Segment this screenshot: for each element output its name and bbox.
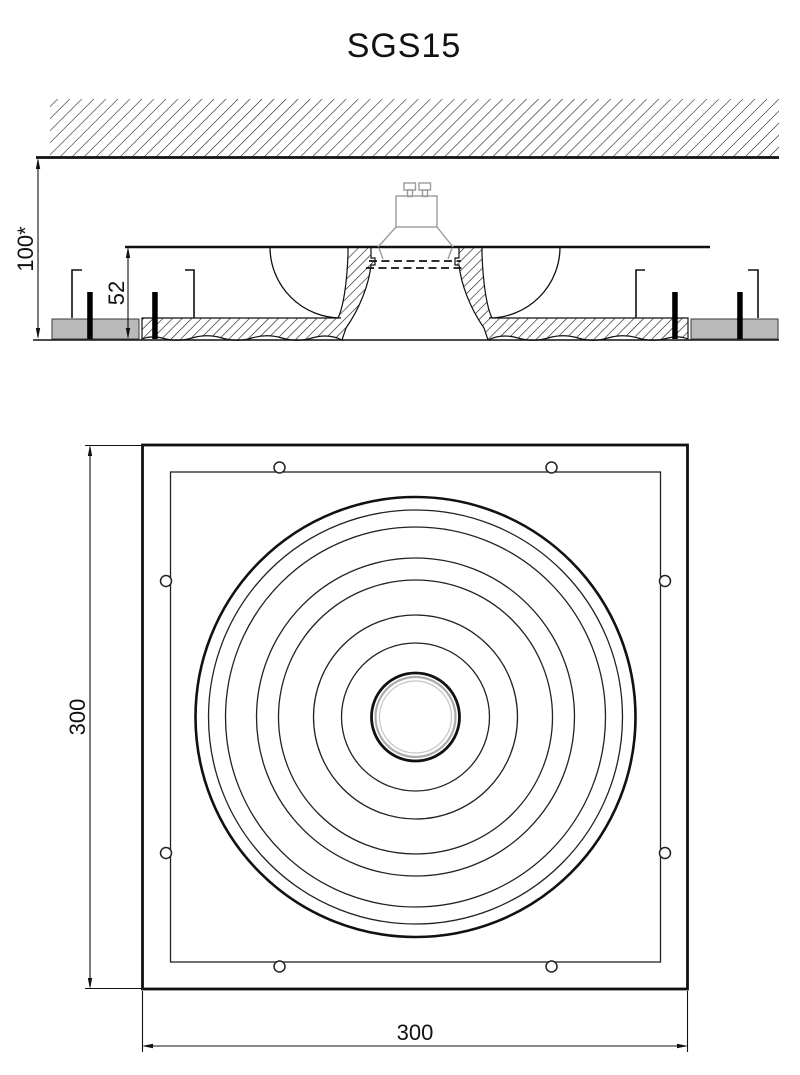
cove-curve-left [270,247,341,318]
ripple-circle [279,580,553,854]
plan-width-dimension: 300 [142,991,688,1052]
spring-clip [185,270,194,318]
lamp-cone-right-lower [448,248,452,259]
spring-clip [636,270,645,318]
arrowhead-down [36,328,40,339]
section-view: 100* 52 [13,99,779,340]
fixture-height-label: 52 [104,281,129,305]
ripple-circle [257,558,575,876]
plasterboard-left [52,319,139,339]
cove-curve-right [489,247,560,318]
lamp-cone-left-lower [379,248,383,259]
lamp-body [396,196,437,227]
fixing-bar [737,292,743,339]
screw-hole [660,848,671,859]
arrowhead-up [36,158,40,169]
plan-width-label: 300 [397,1020,434,1045]
lamp-cone-right [437,227,453,247]
fixture-section-left [142,247,375,340]
lamp-pin-cap [404,183,416,190]
lamp-pin-cap [419,183,431,190]
plan-height-dimension: 300 [65,445,145,989]
plasterboard-right [691,319,778,339]
plan-height-label: 300 [65,699,90,736]
ripple-circle [209,510,623,924]
lamp-aperture-circle [372,673,460,761]
ripple-circles [196,497,636,937]
cove-outer-circle [196,497,636,937]
screw-hole [161,848,172,859]
screw-hole [274,462,285,473]
plan-view: 300 300 [65,445,688,1052]
sgs15-drawing: SGS15 [0,0,800,1075]
fixing-bar [672,292,678,339]
screw-hole [546,462,557,473]
recess-depth-dimension: 100* [13,158,40,339]
screw-hole [161,576,172,587]
fixture-section-right [455,247,688,340]
recess-depth-label: 100* [13,226,38,272]
technical-drawing-page: SGS15 [0,0,800,1075]
ceiling-slab-hatch [50,99,779,157]
ripple-circle [226,527,606,907]
lamp-cone-left [378,227,396,247]
screw-hole [660,576,671,587]
arrowhead-down [88,978,92,989]
plan-inner-square [171,472,661,962]
arrowhead-left [142,1044,153,1048]
arrowhead-up [88,445,92,456]
lamp-trim-circle [376,677,456,757]
ripple-circle [314,615,518,819]
drawing-title: SGS15 [347,27,462,65]
screw-holes [161,462,671,972]
ripple-circle [342,643,490,791]
fixing-bar [152,292,158,339]
fixing-bar [87,292,93,339]
lamp-trim-circle [380,681,452,753]
screw-hole [274,961,285,972]
spring-clip [748,270,758,318]
screw-hole [546,961,557,972]
arrowhead-right [677,1044,688,1048]
arrowhead-up [126,247,130,258]
spring-clip [72,270,82,318]
